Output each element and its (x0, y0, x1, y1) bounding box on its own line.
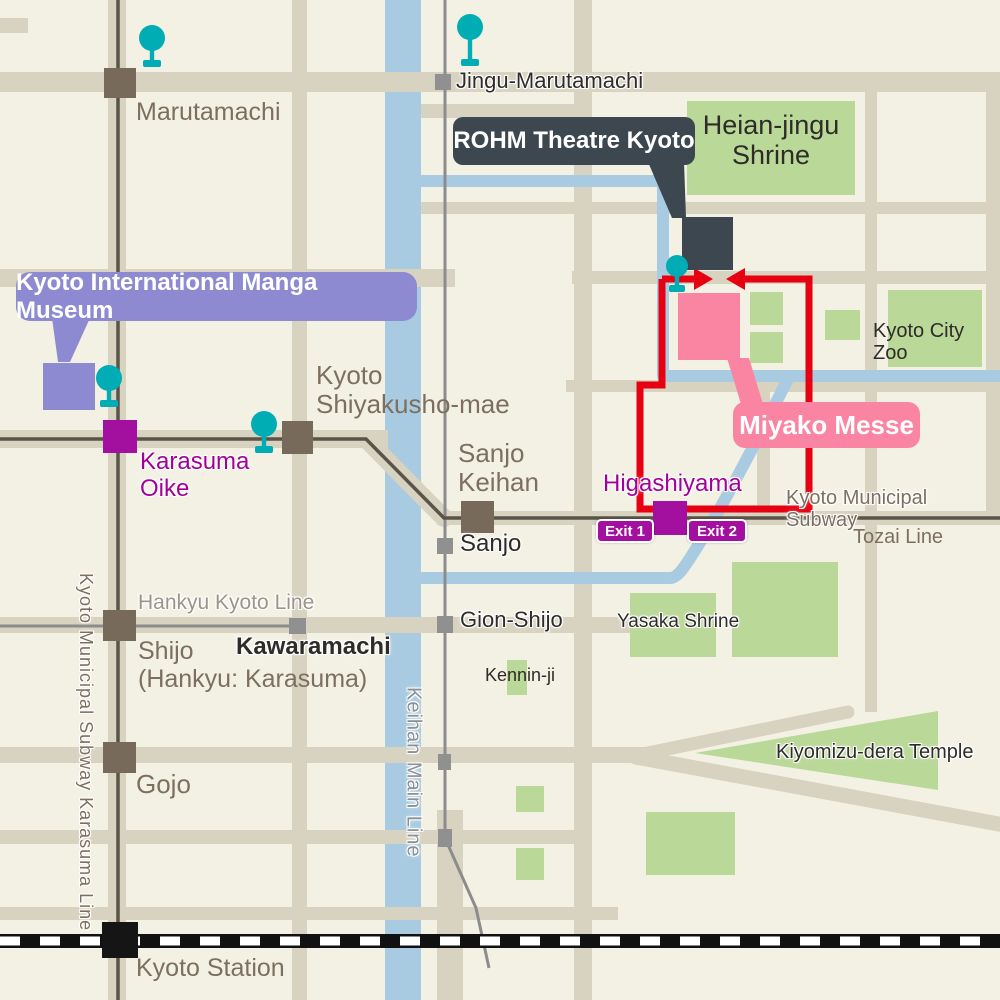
jingu-marutamachi-station-square (435, 74, 451, 90)
green-block (825, 310, 860, 340)
rohm-theatre-building (682, 217, 733, 270)
green-block (516, 848, 544, 880)
rohm-theatre-badge: ROHM Theatre Kyoto (453, 117, 695, 165)
green-block (750, 332, 783, 363)
tozai-subway-label-2: Tozai Line (853, 526, 943, 548)
road (986, 90, 1000, 515)
jr-line (0, 934, 1000, 948)
shichijo-station-square (438, 829, 452, 847)
marutamachi-station-square (104, 68, 136, 98)
karasuma-oike-label: Karasuma Oike (140, 449, 249, 503)
kiyomizu-label: Kiyomizu-dera Temple (776, 741, 974, 763)
exit1-badge: Exit 1 (596, 519, 654, 543)
miyako-messe-badge: Miyako Messe (733, 402, 920, 448)
manga-museum-building (43, 363, 95, 410)
jingu-marutamachi-label: Jingu-Marutamachi (456, 69, 643, 94)
gion-shijo-station-square (437, 616, 453, 633)
gion-shijo-label: Gion-Shijo (460, 608, 563, 633)
gojo-label: Gojo (136, 770, 191, 799)
road-nijo-east (421, 202, 1000, 214)
higashiyama-label: Higashiyama (603, 471, 742, 498)
green-block (750, 292, 783, 325)
marutamachi-label: Marutamachi (136, 98, 281, 126)
sanjo-keihan-station-square (461, 501, 494, 533)
yasaka-shrine-label: Yasaka Shrine (617, 611, 739, 632)
sanjo-keihan-label: Sanjo Keihan (458, 439, 539, 497)
kiyomizu-gojo-station-square (438, 754, 451, 770)
maruyama-park (732, 562, 838, 657)
miyako-messe-building (678, 293, 740, 360)
hankyu-line-label: Hankyu Kyoto Line (138, 591, 314, 615)
kyoto-station-label: Kyoto Station (136, 954, 285, 982)
green-block (646, 812, 735, 875)
kawaramachi-station-square (289, 618, 306, 634)
road (865, 90, 877, 712)
shiyakusho-mae-label: Kyoto Shiyakusho-mae (316, 361, 510, 419)
kyoto-city-zoo-label: Kyoto City Zoo (873, 320, 1000, 365)
map-pin-icon (666, 255, 688, 292)
keihan-main-line-label: Keihan Main Line (402, 687, 424, 858)
sanjo-label: Sanjo (460, 531, 521, 558)
exit2-badge: Exit 2 (687, 519, 747, 543)
karasuma-oike-station-square (103, 420, 137, 453)
kyoto-access-map: Marutamachi Jingu-Marutamachi Heian-jing… (0, 0, 1000, 1000)
road-gojo (0, 747, 645, 763)
manga-badge-tail (52, 318, 90, 362)
manga-museum-badge: Kyoto International Manga Museum (16, 272, 417, 321)
higashiyama-station-square (653, 501, 687, 535)
kyoto-station-square (102, 922, 138, 958)
sanjo-station-square (437, 538, 453, 554)
shiyakusho-mae-station-square (282, 421, 313, 454)
shijo-station-square (103, 610, 136, 641)
road (0, 18, 28, 33)
kenninji-label: Kennin-ji (485, 665, 555, 685)
karasuma-line-label: Kyoto Municipal Subway Karasuma Line (76, 573, 96, 931)
heian-jingu-label: Heian-jingu Shrine (687, 110, 855, 170)
map-pin-icon (139, 25, 165, 67)
map-pin-icon (457, 14, 483, 66)
gojo-station-square (103, 742, 136, 773)
road-kawaramachi (292, 0, 307, 1000)
green-block (516, 786, 544, 812)
shijo-label: Shijo (Hankyu: Karasuma) (138, 637, 367, 693)
